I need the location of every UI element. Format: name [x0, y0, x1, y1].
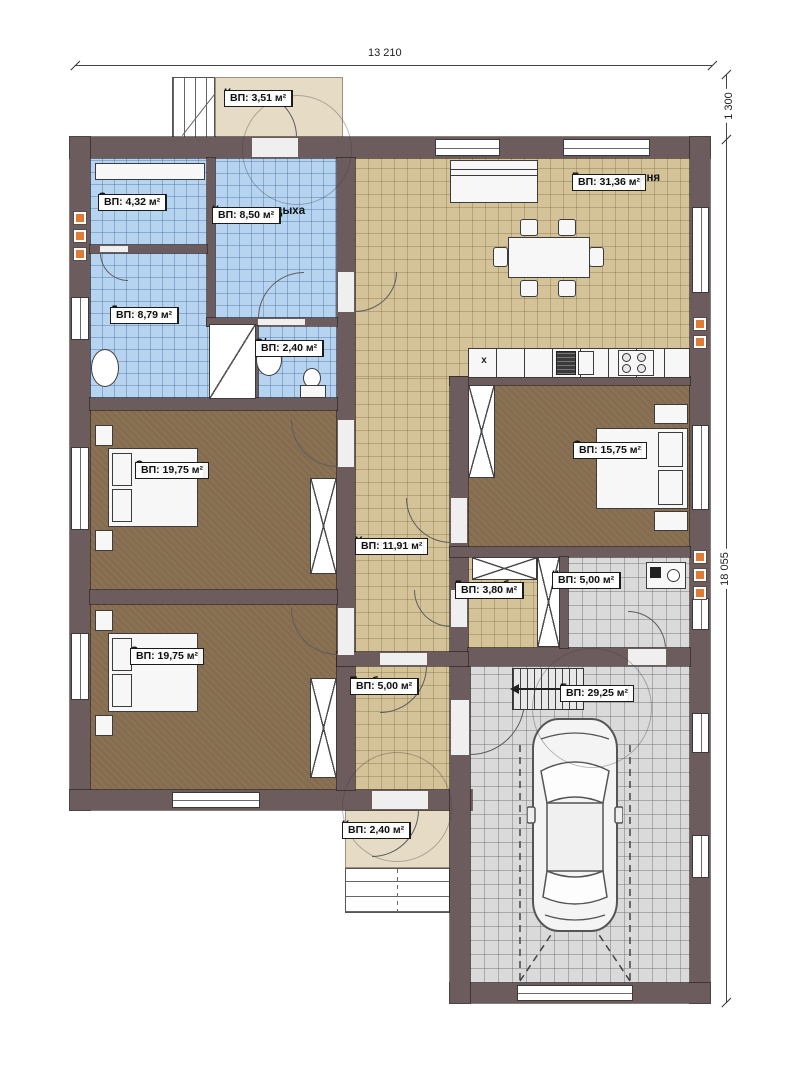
garage-gate-opening — [517, 985, 633, 1001]
wall-bedrooms-sep — [90, 590, 337, 604]
window — [71, 297, 89, 340]
wall-kitchen-bottom — [450, 377, 690, 385]
nightstand — [654, 511, 688, 531]
vent — [74, 212, 86, 224]
pillow — [112, 453, 132, 486]
window — [692, 835, 709, 878]
watermark-circle — [532, 648, 652, 768]
porch-bottom-steps-centerline — [397, 868, 398, 913]
dining-chair — [558, 280, 576, 297]
dimension-right-main-value: 18 055 — [719, 549, 731, 589]
stove-burner — [622, 364, 631, 373]
stove-burner — [637, 364, 646, 373]
door-opening — [338, 420, 354, 467]
pillow — [658, 470, 683, 505]
floor-plan: 13 210 1 300 18 055 — [0, 0, 792, 1080]
wall-spa-bottom — [90, 398, 337, 410]
window — [692, 425, 709, 510]
window — [692, 713, 709, 753]
shower-tray — [209, 324, 256, 399]
dining-table — [508, 237, 590, 278]
pillow — [112, 489, 132, 522]
door-opening — [258, 319, 305, 325]
window — [692, 207, 709, 293]
tv-unit — [450, 160, 538, 203]
window — [71, 447, 89, 530]
dining-chair — [558, 219, 576, 236]
kitchen-counter-mark: x — [474, 355, 494, 366]
vent — [694, 318, 706, 330]
sauna-bench — [95, 163, 205, 180]
watermark-circle — [242, 95, 352, 205]
window — [71, 633, 89, 700]
window — [692, 598, 709, 630]
window — [435, 139, 500, 156]
door-opening — [100, 246, 128, 252]
dining-chair — [589, 247, 604, 267]
door-opening — [380, 653, 427, 665]
door-opening — [338, 272, 354, 312]
nightstand — [95, 425, 113, 446]
window — [563, 139, 650, 156]
dimension-right-upper-value: 1 300 — [723, 89, 735, 123]
dining-chair — [520, 280, 538, 297]
kitchen-sink-drainer — [578, 351, 594, 375]
door-opening — [338, 608, 354, 655]
door-opening — [628, 649, 666, 665]
nightstand — [95, 715, 113, 736]
wardrobe-cabinet — [468, 385, 495, 478]
dining-chair — [520, 219, 538, 236]
boiler-gauge — [667, 569, 680, 582]
stove-burner — [622, 353, 631, 362]
wall-sauna-rest — [207, 158, 215, 326]
boiler-switch — [650, 567, 661, 578]
dimension-top-value: 13 210 — [365, 47, 405, 59]
wardrobe-cabinet — [310, 678, 337, 778]
kitchen-sink — [556, 351, 576, 375]
wardrobe-cabinet — [310, 478, 337, 574]
door-opening — [451, 498, 467, 543]
nightstand — [95, 530, 113, 551]
vent — [74, 230, 86, 242]
vent — [694, 587, 706, 599]
nightstand — [95, 610, 113, 631]
dining-chair — [493, 247, 508, 267]
wall-bedroom2-bottom — [450, 547, 690, 557]
wardrobe-cabinet — [472, 557, 537, 580]
vent — [694, 336, 706, 348]
door-opening — [451, 700, 469, 755]
watermark-circle — [342, 752, 452, 862]
vent — [694, 569, 706, 581]
sink — [91, 349, 119, 387]
vent — [694, 551, 706, 563]
pillow — [658, 432, 683, 467]
dimension-line-top — [75, 65, 712, 66]
toilet-tank — [300, 385, 326, 398]
porch-top-steps — [172, 77, 215, 138]
pillow — [112, 674, 132, 707]
vent — [74, 248, 86, 260]
wall-hall-left — [337, 158, 355, 790]
window — [172, 792, 260, 808]
pillow — [112, 638, 132, 671]
stove-burner — [637, 353, 646, 362]
nightstand — [654, 404, 688, 424]
